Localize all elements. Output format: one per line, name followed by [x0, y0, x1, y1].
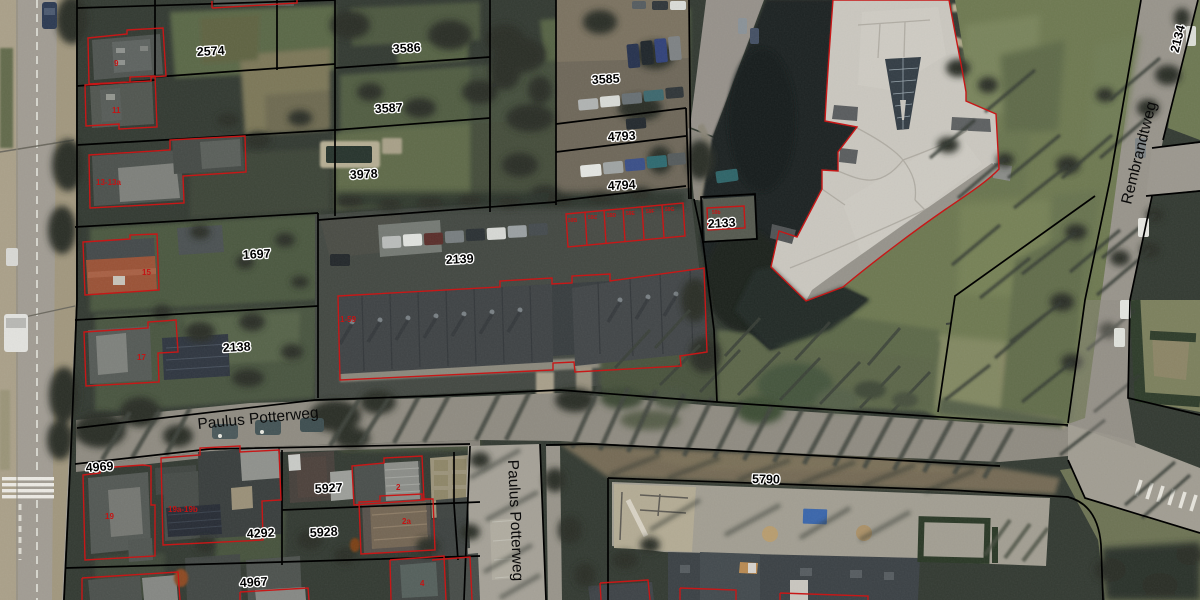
svg-text:4: 4	[420, 579, 425, 588]
svg-text:3587: 3587	[374, 101, 403, 116]
svg-text:59D: 59D	[607, 213, 617, 219]
svg-text:2138: 2138	[222, 340, 251, 355]
svg-text:5927: 5927	[314, 481, 343, 496]
svg-text:9: 9	[114, 59, 119, 68]
svg-text:59C: 59C	[588, 215, 598, 221]
svg-text:2133: 2133	[707, 216, 736, 231]
svg-text:5928: 5928	[309, 525, 338, 540]
svg-text:4969: 4969	[85, 459, 114, 475]
svg-text:1697: 1697	[242, 247, 271, 262]
svg-text:2574: 2574	[196, 44, 225, 59]
svg-text:19: 19	[105, 512, 114, 521]
svg-text:4793: 4793	[607, 129, 636, 144]
svg-text:4967: 4967	[239, 575, 268, 590]
svg-text:5790: 5790	[752, 472, 780, 486]
svg-text:2a: 2a	[402, 517, 411, 526]
svg-text:17: 17	[137, 353, 146, 362]
svg-text:59G: 59G	[665, 207, 675, 213]
svg-text:3586: 3586	[392, 41, 421, 56]
svg-text:59F: 59F	[646, 209, 655, 215]
svg-text:11: 11	[112, 106, 121, 115]
svg-text:2: 2	[396, 483, 401, 492]
svg-text:59E: 59E	[626, 211, 636, 217]
svg-text:19a-19b: 19a-19b	[168, 505, 198, 514]
svg-text:13-13a: 13-13a	[96, 178, 121, 187]
svg-text:59b: 59b	[712, 210, 721, 216]
svg-text:3585: 3585	[591, 72, 620, 87]
svg-text:3978: 3978	[349, 167, 378, 182]
svg-text:4292: 4292	[246, 526, 275, 541]
svg-text:15: 15	[142, 268, 151, 277]
svg-text:2139: 2139	[445, 252, 474, 267]
svg-text:1-59: 1-59	[340, 315, 357, 324]
svg-text:4794: 4794	[607, 178, 636, 193]
svg-text:59B: 59B	[568, 218, 578, 224]
